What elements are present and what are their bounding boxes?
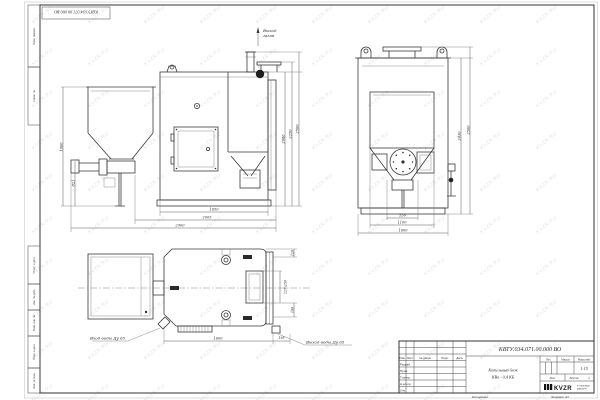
dim-2005: 2005 bbox=[201, 216, 212, 220]
row-utv: Утв. bbox=[400, 389, 406, 393]
dim-2250: 2250 bbox=[289, 129, 293, 140]
drawing-sheet: KVZR.RUKVZR.RUKVZR.RUKVZR.RUKVZR.RUKVZR.… bbox=[0, 0, 600, 400]
logo-sub-2: ЗАВОД.РУ bbox=[577, 388, 588, 391]
dim-1100: 1100 bbox=[397, 221, 407, 225]
sheet-label: Лист bbox=[549, 376, 556, 380]
frame-side-columns: Перв. примен. Справ. № Подп. и дата Инв.… bbox=[28, 5, 40, 393]
product-name-2: КВа - 0,4 КБ bbox=[491, 375, 515, 381]
col-izm: Изм. bbox=[400, 356, 406, 360]
title-block: Изм. Лист № докум. Подп. Дата Разраб. Пр… bbox=[399, 341, 594, 393]
mass-label: Масса bbox=[561, 358, 570, 362]
dim-2430: 2430 bbox=[458, 131, 462, 142]
water-inlet-label: Вход воды Ду 65 bbox=[89, 336, 126, 341]
lit-label: Лит. bbox=[546, 358, 551, 362]
dim-2500-side: 2500 bbox=[296, 124, 300, 135]
row-razrab: Разраб. bbox=[400, 363, 411, 367]
frame-label-invdubl: Инв. № дубл. bbox=[32, 289, 36, 305]
frame-label-podp1: Подп. и дата bbox=[32, 257, 36, 273]
frame-label-vzam: Взам. инв. № bbox=[32, 315, 36, 331]
row-nkontr: Н.контр. bbox=[400, 382, 412, 386]
format-label: Формат А3 bbox=[551, 395, 569, 399]
view-plan: Вход воды Ду 65 Выход воды Ду 65 1600 19… bbox=[78, 249, 352, 345]
gas-outlet-arrow-icon bbox=[257, 27, 260, 33]
product-name-1: Котельный блок bbox=[487, 368, 517, 373]
dim-1600-plan: 1600 bbox=[213, 337, 223, 341]
flue-fan-icon bbox=[256, 70, 264, 78]
col-data: Дата bbox=[456, 356, 463, 360]
gas-outlet-label-2: газов bbox=[263, 33, 275, 38]
col-doc: № докум. bbox=[419, 356, 432, 360]
col-podp: Подп. bbox=[441, 356, 449, 360]
frame-label-podp2: Подп. и дата bbox=[32, 344, 36, 360]
dim-2900: 2900 bbox=[174, 224, 185, 228]
view-side-elevation: Выход газов 1900 821 2086 2250 250 bbox=[60, 27, 303, 232]
row-tkontr: Т.контр. bbox=[400, 376, 411, 380]
doc-number: КВТУ.034.071.00.000 ВО bbox=[498, 346, 562, 353]
frame-label-perv: Перв. примен. bbox=[32, 27, 36, 45]
dim-1600-front: 1600 bbox=[398, 229, 408, 233]
dim-195: 195 bbox=[278, 336, 284, 340]
top-stamp-number: КВТУ.034.071.00.000 ВО bbox=[54, 10, 99, 15]
dim-550: 550 bbox=[399, 214, 407, 218]
frame-label-invpodl: Инв. № подл. bbox=[32, 372, 36, 388]
water-outlet-label: Выход воды Ду 65 bbox=[305, 340, 345, 345]
dim-1650: 1650 bbox=[209, 208, 219, 212]
dim-2086: 2086 bbox=[282, 134, 286, 145]
row-prov: Пров. bbox=[400, 369, 408, 373]
sheets-value: 1 bbox=[588, 376, 590, 380]
dim-225x250: 225х250 bbox=[284, 280, 288, 295]
top-stamp: КВТУ.034.071.00.000 ВО bbox=[42, 7, 110, 19]
view-front-elevation: 550 1100 1600 2430 2500 bbox=[355, 47, 473, 236]
frame-label-sprav: Справ. № bbox=[32, 90, 36, 102]
dim-2500-front: 2500 bbox=[467, 125, 471, 136]
dim-100: 100 bbox=[291, 307, 295, 313]
dim-821: 821 bbox=[72, 180, 76, 187]
dim-120: 120 bbox=[291, 250, 295, 256]
scale-value: 1:15 bbox=[580, 366, 588, 371]
col-list: Лист bbox=[407, 356, 414, 360]
sheets-label: Листов bbox=[569, 376, 579, 380]
logo-sub-1: КОТЕЛЬНЫЙ bbox=[577, 385, 590, 388]
engineering-drawing: Перв. примен. Справ. № Подп. и дата Инв.… bbox=[0, 0, 600, 400]
logo-text: KVZR bbox=[554, 386, 572, 392]
copied-label: Копировал bbox=[471, 395, 488, 399]
frame-footer: Копировал Формат А3 bbox=[471, 395, 569, 399]
scale-label: Масштаб bbox=[578, 358, 590, 362]
dim-1900: 1900 bbox=[60, 142, 64, 152]
company-logo: KVZR КОТЕЛЬНЫЙ ЗАВОД.РУ bbox=[544, 384, 590, 392]
